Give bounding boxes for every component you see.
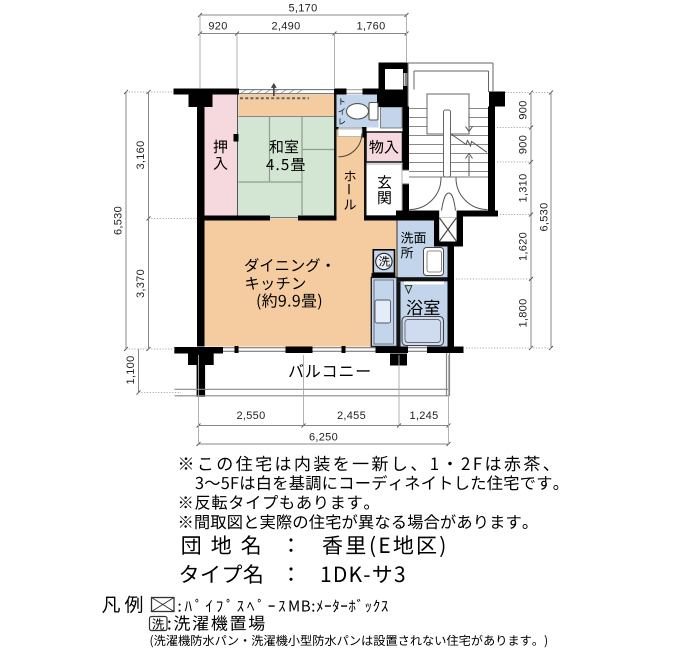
svg-text:3,370: 3,370	[135, 269, 147, 298]
svg-text:6,250: 6,250	[309, 432, 338, 444]
svg-text:6,530: 6,530	[539, 202, 551, 231]
svg-text:900: 900	[518, 100, 530, 119]
svg-text:2,490: 2,490	[271, 21, 300, 33]
svg-text:1,245: 1,245	[409, 410, 438, 422]
svg-text:1,800: 1,800	[518, 298, 530, 327]
svg-text:5,170: 5,170	[288, 3, 317, 15]
svg-text:900: 900	[518, 135, 530, 154]
svg-text:3,160: 3,160	[135, 140, 147, 169]
svg-text:1,620: 1,620	[518, 232, 530, 261]
svg-text:6,530: 6,530	[113, 206, 125, 235]
svg-text:2,550: 2,550	[236, 410, 265, 422]
svg-text:2,455: 2,455	[337, 410, 366, 422]
svg-text:1,100: 1,100	[125, 355, 137, 384]
svg-text:920: 920	[208, 21, 227, 33]
svg-text:1,310: 1,310	[518, 173, 530, 202]
svg-text:1,760: 1,760	[356, 21, 385, 33]
